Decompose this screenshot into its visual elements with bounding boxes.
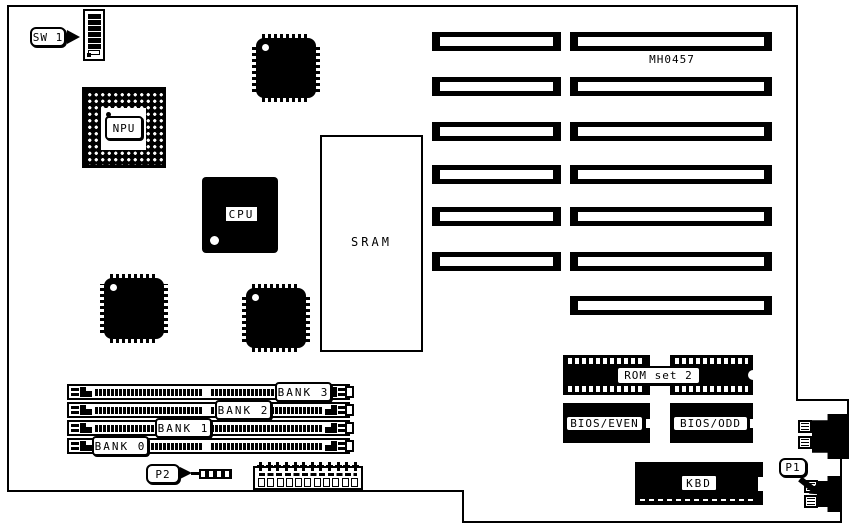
kbd-chip: KBD xyxy=(635,462,763,505)
bios-odd-chip: BIOS/ODD xyxy=(670,403,753,443)
bank2-label: BANK 2 xyxy=(215,400,272,420)
pin-block xyxy=(798,420,812,433)
power-connector-holes xyxy=(258,478,358,487)
din-connector-upper xyxy=(812,414,849,459)
callout-sw1: SW 1 xyxy=(30,27,66,47)
expansion-slot xyxy=(432,77,561,96)
npu-label-box: NPU xyxy=(105,116,143,140)
chip-notch xyxy=(758,477,763,491)
expansion-slot xyxy=(570,122,772,141)
bank0-label: BANK 0 xyxy=(92,436,149,456)
bios-even-chip: BIOS/EVEN xyxy=(563,403,650,443)
chip-notch xyxy=(646,419,650,428)
p2-arrow-stub xyxy=(191,472,199,475)
expansion-slot xyxy=(570,165,772,184)
npu-socket: NPU xyxy=(82,87,166,168)
p2-label: P2 xyxy=(155,469,170,480)
bios-even-label-box: BIOS/EVEN xyxy=(565,415,644,432)
expansion-slot xyxy=(570,296,772,315)
simm-socket-bank2 xyxy=(67,402,350,418)
callout-p1: P1 xyxy=(779,458,807,477)
callout-p2: P2 xyxy=(146,464,180,484)
kbd-label: KBD xyxy=(686,478,712,489)
power-connector xyxy=(253,462,363,490)
bank3-label: BANK 3 xyxy=(275,382,332,402)
expansion-slot xyxy=(432,165,561,184)
npu-label: NPU xyxy=(113,123,136,134)
rom-set-label: ROM set 2 xyxy=(624,370,693,381)
expansion-slot xyxy=(570,77,772,96)
pin1-dot xyxy=(262,44,269,51)
dip-switch-dot xyxy=(87,53,91,57)
expansion-slot xyxy=(432,32,561,51)
kbd-dashed-line xyxy=(640,499,757,501)
expansion-slot xyxy=(570,207,772,226)
expansion-slot xyxy=(570,252,772,271)
din-connector-lower xyxy=(817,476,842,512)
expansion-slot xyxy=(570,32,772,51)
p2-header-connector xyxy=(199,469,232,479)
qfp-chip-1 xyxy=(252,34,320,102)
cpu-chip: CPU xyxy=(202,177,278,253)
motherboard-diagram: SW 1 NPU CPU SRAM xyxy=(0,0,852,531)
kbd-label-box: KBD xyxy=(681,475,717,491)
power-connector-contacts xyxy=(259,473,357,476)
expansion-slot xyxy=(432,122,561,141)
pin-block xyxy=(798,436,812,449)
rom-set-label-box: ROM set 2 xyxy=(616,366,701,385)
pin1-dot xyxy=(210,236,219,245)
bios-odd-label-box: BIOS/ODD xyxy=(672,415,749,432)
sw1-label: SW 1 xyxy=(33,32,64,43)
p1-label: P1 xyxy=(785,462,800,473)
sram-block: SRAM xyxy=(320,135,423,352)
sram-label: SRAM xyxy=(322,235,421,249)
bios-even-label: BIOS/EVEN xyxy=(570,418,639,429)
board-id-label: MH0457 xyxy=(640,53,704,66)
pin1-dot xyxy=(252,294,259,301)
chip-notch xyxy=(749,419,753,428)
bios-odd-label: BIOS/ODD xyxy=(680,418,741,429)
sw1-arrow-icon xyxy=(67,30,80,44)
power-connector-pins xyxy=(257,462,359,471)
bank1-label: BANK 1 xyxy=(155,418,212,438)
cpu-label: CPU xyxy=(225,206,258,222)
pin1-dot xyxy=(110,284,117,291)
expansion-slot xyxy=(432,207,561,226)
dip-switch-sw1 xyxy=(83,9,105,61)
chip-notch xyxy=(748,370,758,380)
expansion-slot xyxy=(432,252,561,271)
qfp-chip-3 xyxy=(242,284,310,352)
qfp-chip-2 xyxy=(100,274,168,343)
